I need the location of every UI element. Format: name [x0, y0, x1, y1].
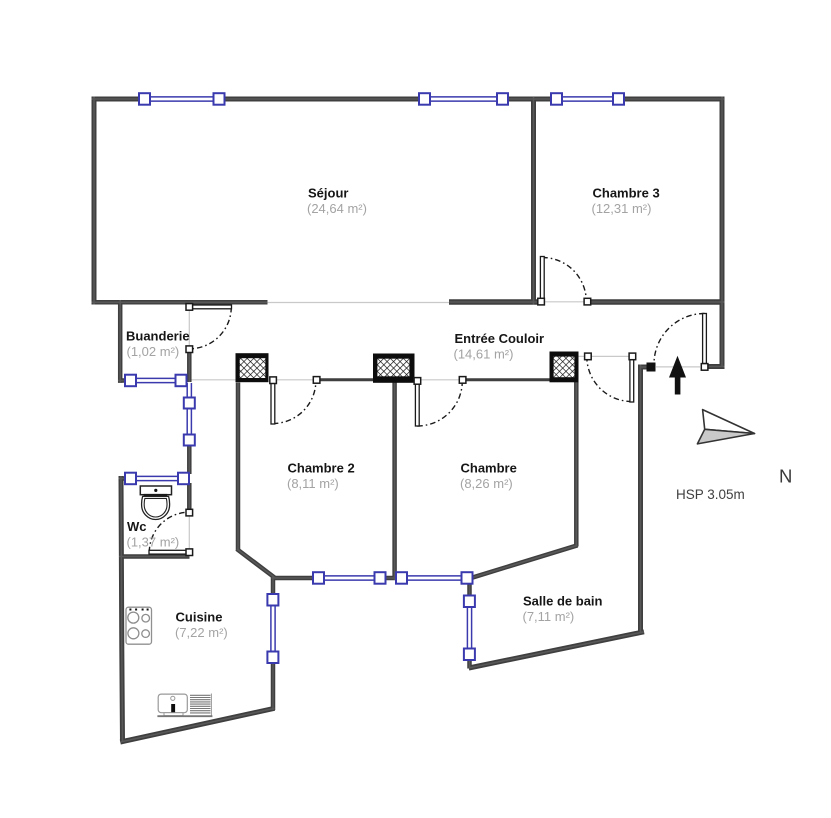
svg-text:Chambre 2: Chambre 2 — [288, 461, 355, 476]
svg-text:Wc: Wc — [127, 519, 147, 534]
svg-text:(24,64 m²): (24,64 m²) — [307, 201, 367, 216]
svg-text:HSP 3.05m: HSP 3.05m — [676, 487, 745, 502]
svg-text:(1,37 m²): (1,37 m²) — [127, 535, 180, 550]
svg-text:(12,31 m²): (12,31 m²) — [592, 201, 652, 216]
svg-text:(14,61 m²): (14,61 m²) — [454, 347, 514, 362]
svg-text:Chambre 3: Chambre 3 — [593, 186, 660, 201]
svg-text:(8,26 m²): (8,26 m²) — [460, 476, 513, 491]
svg-text:(7,11 m²): (7,11 m²) — [523, 609, 575, 624]
svg-text:Cuisine: Cuisine — [176, 610, 223, 625]
svg-text:(1,02 m²): (1,02 m²) — [127, 344, 180, 359]
svg-text:N: N — [779, 466, 792, 487]
svg-text:(8,11 m²): (8,11 m²) — [287, 476, 339, 491]
svg-text:Buanderie: Buanderie — [126, 329, 190, 344]
svg-text:(7,22 m²): (7,22 m²) — [175, 625, 228, 640]
svg-text:Entrée Couloir: Entrée Couloir — [455, 331, 545, 346]
svg-text:Séjour: Séjour — [308, 186, 348, 201]
svg-text:Salle de bain: Salle de bain — [523, 594, 603, 609]
svg-text:Chambre: Chambre — [461, 461, 517, 476]
